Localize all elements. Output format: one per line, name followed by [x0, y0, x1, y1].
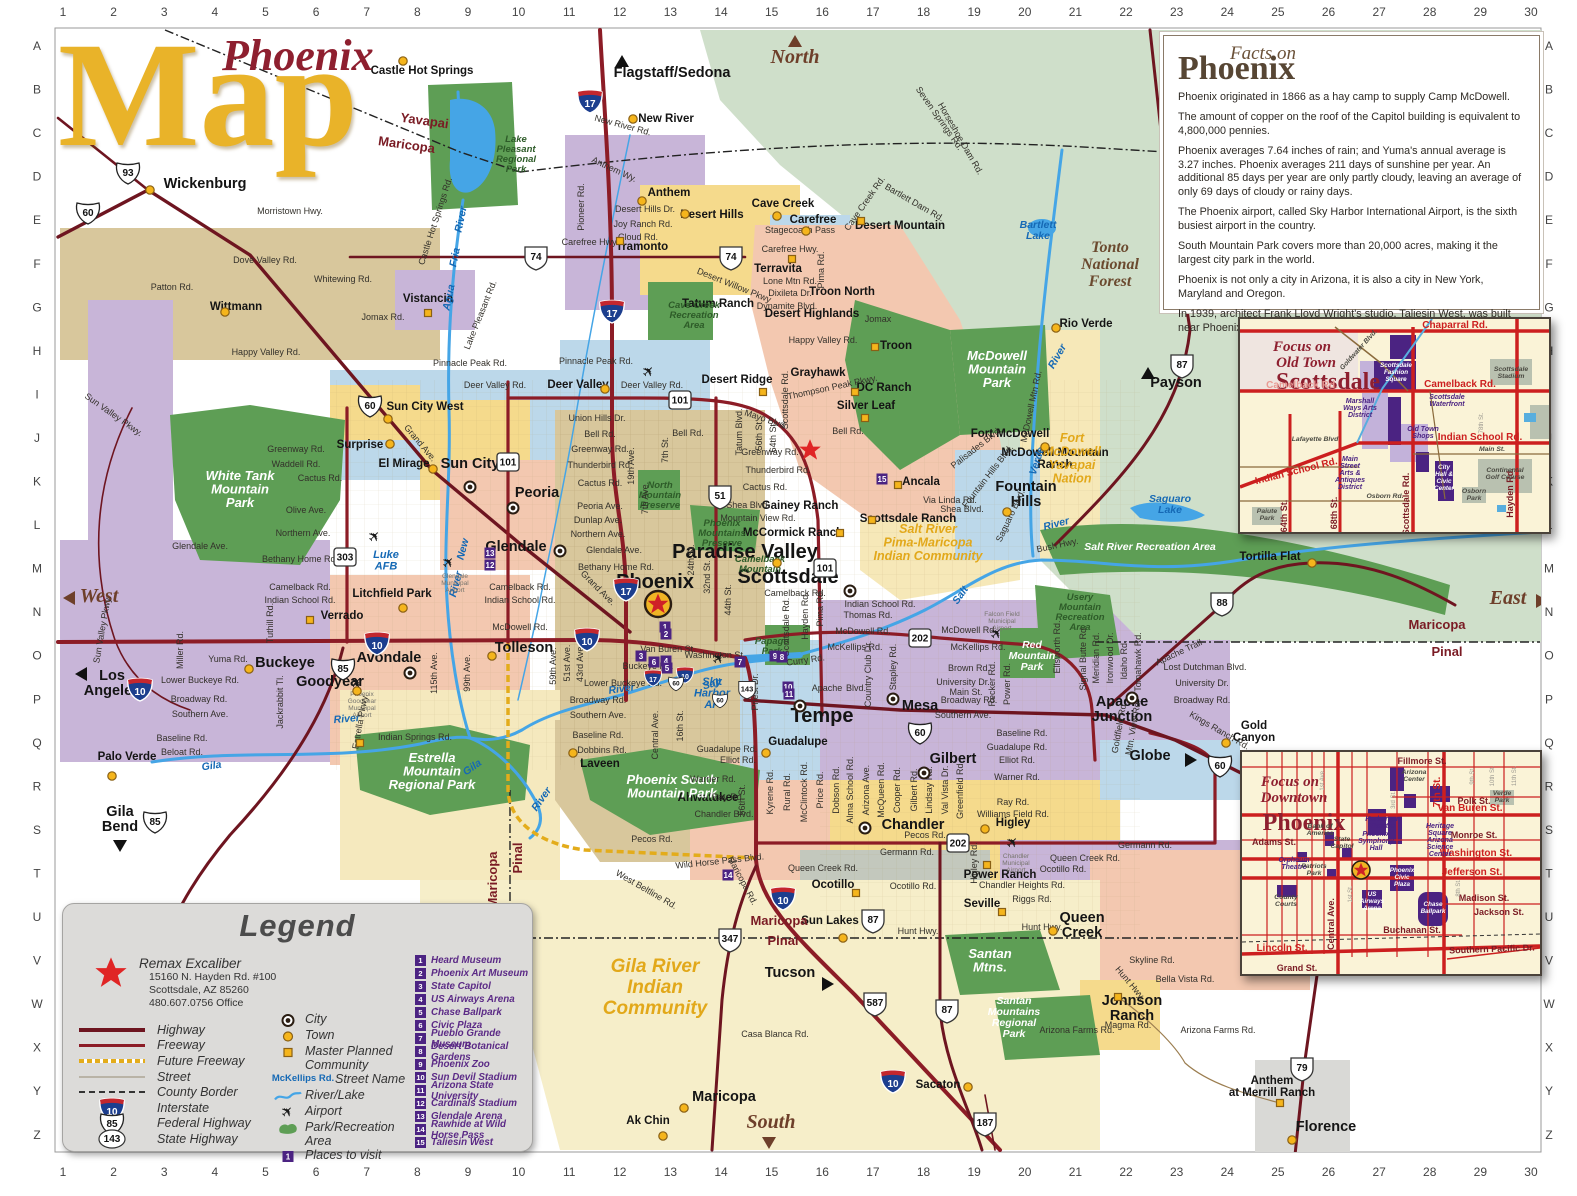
- grid-row-label: X: [33, 1041, 41, 1055]
- place-label: El Mirage: [378, 458, 429, 470]
- road-label: Thomas Rd.: [843, 610, 892, 620]
- grid-row-label: B: [33, 83, 41, 97]
- road-label: Bethany Home Rd.: [578, 562, 654, 572]
- road-label: Southern Ave.: [935, 710, 991, 720]
- inset-label: Jackson St.: [1474, 907, 1524, 917]
- road-label: Guadalupe Rd.: [697, 744, 758, 754]
- inset-block: [1524, 413, 1536, 422]
- park-label: SantanMtns.: [968, 946, 1011, 975]
- grid-row-label: M: [1544, 562, 1554, 576]
- place-label: Palo Verde: [98, 751, 157, 763]
- place-label: Florence: [1296, 1119, 1356, 1135]
- place-label: Desert Mountain: [855, 220, 945, 232]
- legend-item-highway: Highway: [79, 1022, 269, 1038]
- grid-row-label: Y: [1545, 1084, 1553, 1098]
- place-label: QueenCreek: [1059, 910, 1104, 941]
- master-planned-community-dot: [789, 256, 796, 263]
- place-label: Flagstaff/Sedona: [614, 65, 732, 81]
- city-dot: [845, 586, 856, 597]
- road-label: Glendale Ave.: [586, 545, 642, 555]
- road-label: Indian School Rd.: [844, 599, 915, 609]
- svg-text:143: 143: [104, 1134, 121, 1145]
- road-label: Tuthill Rd.: [265, 603, 275, 643]
- road-label: Skyline Rd.: [1129, 955, 1175, 965]
- town-dot: [773, 212, 781, 220]
- realtor-address-line: Scottsdale, AZ 85260: [149, 984, 293, 997]
- inset-label: 3rd St.: [1391, 791, 1397, 809]
- grid-row-label: B: [1545, 83, 1553, 97]
- road-label: Bella Vista Rd.: [1156, 974, 1215, 984]
- grid-row-label: P: [1545, 692, 1553, 706]
- road-label: Bell Rd.: [672, 428, 704, 438]
- inset-label: Madison St.: [1459, 893, 1510, 903]
- road-label: Dobbins Rd.: [577, 745, 627, 755]
- road-label: Dobson Rd.: [831, 766, 841, 814]
- place-label: New River: [638, 113, 694, 125]
- road-label: 99th Ave.: [462, 654, 472, 691]
- master-planned-community-dot: [357, 740, 364, 747]
- road-label: Arizona Farms Rd.: [1039, 1025, 1114, 1035]
- county-label: Pinal: [767, 933, 798, 948]
- place-label: Laveen: [580, 758, 620, 770]
- road-label: Jomax Rd.: [361, 312, 404, 322]
- svg-text:202: 202: [912, 634, 929, 645]
- road-label: University Dr.: [936, 677, 990, 687]
- road-label: Ironwood Dr.: [1105, 632, 1115, 683]
- town-dot: [802, 227, 810, 235]
- svg-text:17: 17: [606, 309, 618, 320]
- grid-col-label: 23: [1170, 1165, 1184, 1179]
- road-label: Guadalupe Rd.: [987, 742, 1048, 752]
- realtor-name: Remax Excaliber: [139, 956, 293, 971]
- road-label: Jackrabbit Tl.: [275, 675, 285, 728]
- road-label: 32nd St.: [702, 560, 712, 594]
- town-dot: [1049, 927, 1057, 935]
- city-dot: [405, 668, 416, 679]
- road-label: Shea Blvd.: [726, 500, 770, 510]
- grid-col-label: 17: [866, 5, 880, 19]
- city-dot: [919, 768, 930, 779]
- grid-col-label: 10: [512, 5, 526, 19]
- svg-text:17: 17: [584, 99, 596, 110]
- grid-col-label: 22: [1119, 1165, 1133, 1179]
- inset-star-marker: [1352, 861, 1370, 879]
- road-label: Deer Valley Rd.: [621, 380, 683, 390]
- grid-col-label: 26: [1322, 5, 1336, 19]
- road-label: Stapley Rd.: [888, 644, 898, 691]
- master-planned-community-dot: [862, 415, 869, 422]
- grid-col-label: 24: [1221, 5, 1235, 19]
- place-label: LukeAFB: [373, 549, 399, 573]
- grid-row-label: L: [34, 518, 41, 532]
- grid-col-label: 15: [765, 5, 779, 19]
- inset-scottsdale: Focus onOld TownScottsdaleCamelback Rd.C…: [1238, 317, 1551, 534]
- grid-row-label: F: [1545, 257, 1552, 271]
- road-label: Patton Rd.: [151, 282, 194, 292]
- svg-text:14: 14: [724, 871, 733, 880]
- realtor-address-line: 15160 N. Hayden Rd. #100: [149, 971, 293, 984]
- grid-col-label: 23: [1170, 5, 1184, 19]
- inset-label: ArizonaCenter: [1401, 769, 1427, 783]
- highway-shield-87: 87: [862, 910, 884, 933]
- county-label: Maricopa: [750, 913, 808, 928]
- grid-col-label: 12: [613, 5, 627, 19]
- place-label: Avondale: [357, 650, 422, 666]
- road-label: Main St.: [949, 687, 982, 697]
- road-label: Greenway Rd.: [571, 444, 629, 454]
- road-label: 7th Ave.: [640, 482, 650, 514]
- highway-shield-101: 101: [497, 453, 519, 471]
- fact-paragraph: The amount of copper on the roof of the …: [1178, 111, 1525, 138]
- inset-label: Jefferson St.: [1442, 867, 1503, 878]
- place-label: Grayhawk: [791, 367, 847, 379]
- legend-item-street: Street: [79, 1069, 269, 1085]
- place-label: Desert Hills: [680, 209, 743, 221]
- legend-place-3: 3State Capitol: [415, 980, 529, 993]
- town-dot: [773, 559, 781, 567]
- county-label: Maricopa: [1408, 617, 1466, 632]
- road-label: Northern Ave.: [276, 528, 331, 538]
- master-planned-community-dot: [895, 482, 902, 489]
- road-label: Higley Rd.: [969, 842, 979, 884]
- inset-label: ScottsdaleStadium: [1494, 366, 1529, 380]
- inset-label: ContinentalGolf Course: [1486, 467, 1525, 481]
- legend-item-city: City: [271, 1012, 411, 1028]
- town-dot: [1041, 443, 1049, 451]
- fact-paragraph: Phoenix is not only a city in Arizona, i…: [1178, 274, 1525, 301]
- place-to-visit-badge: 2: [661, 629, 672, 640]
- facts-body: Phoenix originated in 1866 as a hay camp…: [1178, 91, 1525, 335]
- grid-col-label: 12: [613, 1165, 627, 1179]
- grid-col-label: 26: [1322, 1165, 1336, 1179]
- road-label: Dove Valley Rd.: [233, 255, 297, 265]
- place-label: Tolleson: [495, 640, 554, 656]
- place-label: Sun Lakes: [801, 915, 859, 927]
- grid-col-label: 13: [664, 5, 678, 19]
- grid-col-label: 24: [1221, 1165, 1235, 1179]
- grid-col-label: 29: [1474, 5, 1488, 19]
- road-label: Power Rd.: [1002, 663, 1012, 705]
- road-label: Greenfield Rd.: [955, 761, 965, 819]
- place-label: Tortilla Flat: [1239, 551, 1300, 563]
- inset-block: [1416, 452, 1429, 472]
- town-dot: [1288, 1136, 1296, 1144]
- place-label: Sun City West: [386, 401, 463, 413]
- road-label: Idaho Rd.: [1119, 640, 1129, 679]
- inset-block: [1327, 869, 1336, 877]
- road-label: Ocotillo Rd.: [1040, 864, 1087, 874]
- inset-block: [1404, 794, 1416, 808]
- grid-col-label: 9: [465, 1165, 472, 1179]
- road-label: Northern Ave.: [571, 529, 626, 539]
- road-label: Bethany Home Rd.: [262, 554, 338, 564]
- grid-col-label: 20: [1018, 5, 1032, 19]
- road-label: Thunderbird Rd.: [567, 460, 632, 470]
- inset-label: 68th St.: [1329, 497, 1339, 530]
- master-planned-community-dot: [837, 530, 844, 537]
- grid-col-label: 5: [262, 5, 269, 19]
- town-dot: [429, 465, 437, 473]
- grid-col-label: 17: [866, 1165, 880, 1179]
- grid-col-label: 6: [313, 1165, 320, 1179]
- city-dot: [860, 823, 871, 834]
- inset-label: PhoenixSymphonyHall: [1358, 831, 1395, 852]
- grid-row-label: Q: [32, 736, 41, 750]
- legend-symbol-items: CityTownMaster Planned CommunityMcKellip…: [271, 1012, 411, 1164]
- grid-row-label: U: [33, 910, 42, 924]
- legend-numbered-items: 1Heard Museum2Phoenix Art Museum3State C…: [415, 954, 529, 1149]
- road-label: Signal Butte Rd.: [1078, 625, 1088, 690]
- svg-text:101: 101: [817, 564, 834, 575]
- direction-label: North: [770, 46, 820, 68]
- road-label: Waddell Rd.: [272, 459, 321, 469]
- place-to-visit-badge: 14: [723, 870, 734, 881]
- grid-col-label: 22: [1119, 5, 1133, 19]
- road-label: Broadway Rd.: [570, 695, 627, 705]
- road-label: Pima Rd.: [816, 251, 826, 288]
- county-label: Pinal: [1431, 644, 1462, 659]
- inset-downtown: Focus onDowntownPhoenixVan Buren St.Wash…: [1240, 750, 1542, 976]
- highway-shield-87: 87: [1171, 355, 1193, 378]
- svg-text:3: 3: [639, 652, 644, 661]
- road-label: Queen Creek Rd.: [1050, 853, 1120, 863]
- inset-label: 1st Ave.: [1320, 769, 1326, 791]
- road-label: Bell Rd.: [584, 429, 616, 439]
- grid-col-label: 21: [1069, 5, 1083, 19]
- svg-text:7: 7: [738, 658, 743, 667]
- place-label: Sun City: [441, 456, 500, 472]
- svg-text:85: 85: [337, 664, 349, 675]
- road-label: Elliot Rd.: [999, 755, 1035, 765]
- road-label: Glendale Ave.: [172, 541, 228, 551]
- place-label: Buckeye: [255, 655, 315, 671]
- direction-label: East: [1489, 587, 1528, 609]
- road-label: 51st Ave.: [562, 645, 572, 682]
- grid-row-label: W: [31, 997, 43, 1011]
- legend-item-places-to-visit: 1Places to visit: [271, 1148, 411, 1164]
- grid-col-label: 30: [1524, 5, 1538, 19]
- grid-col-label: 27: [1372, 5, 1386, 19]
- svg-text:85: 85: [149, 817, 161, 828]
- road-label: Ray Rd.: [997, 797, 1030, 807]
- facts-box: Facts on Phoenix Phoenix originated in 1…: [1163, 35, 1540, 310]
- road-label: Queen Creek Rd.: [788, 863, 858, 873]
- grid-col-label: 11: [563, 1165, 576, 1179]
- grid-col-label: 4: [212, 1165, 219, 1179]
- place-label: Wittmann: [210, 301, 262, 313]
- highway-shield-143: 143: [739, 682, 756, 699]
- road-label: Warner Rd.: [690, 774, 736, 784]
- place-to-visit-badge: 12: [485, 560, 496, 571]
- inset-label: Focus on: [1272, 339, 1331, 355]
- legend-place-11: 11Arizona State University: [415, 1084, 529, 1097]
- legend-realtor: Remax Excaliber 15160 N. Hayden Rd. #100…: [93, 956, 293, 1009]
- road-label: Happy Valley Rd.: [789, 335, 858, 345]
- inset-label: Old TownShops: [1407, 426, 1439, 440]
- road-label: 64th St.: [768, 421, 778, 452]
- grid-col-label: 25: [1271, 5, 1285, 19]
- inset-label: 78th St.: [1479, 412, 1485, 433]
- grid-col-label: 20: [1018, 1165, 1032, 1179]
- place-to-visit-badge: 11: [784, 689, 795, 700]
- svg-text:5: 5: [665, 664, 670, 673]
- legend-item-freeway: Freeway: [79, 1038, 269, 1054]
- legend-box: Legend Remax Excaliber 15160 N. Hayden R…: [62, 903, 533, 1152]
- town-dot: [488, 652, 496, 660]
- town-dot: [601, 385, 609, 393]
- road-label: Riggs Rd.: [1012, 894, 1052, 904]
- svg-text:60: 60: [672, 681, 680, 688]
- place-label: Troon: [880, 340, 912, 352]
- highway-shield-101: 101: [814, 559, 836, 577]
- town-dot: [1222, 739, 1230, 747]
- town-dot: [762, 749, 770, 757]
- road-label: Tomahawk Rd.: [1133, 632, 1143, 692]
- grid-row-label: O: [32, 649, 41, 663]
- place-label: Deer Valley: [547, 379, 609, 391]
- town-dot: [399, 57, 407, 65]
- highway-shield-202: 202: [909, 629, 931, 647]
- grid-row-label: F: [33, 257, 40, 271]
- highway-shield-101: 101: [669, 391, 691, 409]
- town-dot: [839, 934, 847, 942]
- road-label: Bell Rd.: [832, 426, 864, 436]
- town-dot: [569, 749, 577, 757]
- road-label: 44th St.: [723, 584, 733, 615]
- place-label: GilaBend: [102, 804, 138, 835]
- place-label: Surprise: [337, 439, 384, 451]
- grid-col-label: 15: [765, 1165, 779, 1179]
- road-label: Casa Blanca Rd.: [741, 1029, 809, 1039]
- grid-col-label: 5: [262, 1165, 269, 1179]
- master-planned-community-dot: [869, 517, 876, 524]
- road-label: Hayden Rd.: [800, 592, 810, 640]
- road-label: Lower Buckeye Rd.: [161, 675, 239, 685]
- road-label: Camelback Rd.: [489, 582, 551, 592]
- road-label: Beloat Rd.: [161, 747, 203, 757]
- road-label: Happy Valley Rd.: [232, 347, 301, 357]
- place-label: Silver Leaf: [837, 400, 895, 412]
- highway-shield-51: 51: [709, 486, 731, 509]
- city-dot: [555, 546, 566, 557]
- road-label: McQueen Rd.: [876, 762, 886, 818]
- grid-row-label: H: [33, 344, 42, 358]
- legend-title: Legend: [63, 908, 532, 944]
- road-label: Cactus Rd.: [743, 482, 788, 492]
- highway-shield-202: 202: [947, 834, 969, 852]
- grid-row-label: A: [1545, 39, 1553, 53]
- legend-place-12: 12Cardinals Stadium: [415, 1097, 529, 1110]
- grid-row-label: U: [1545, 910, 1554, 924]
- highway-shield-88: 88: [1211, 593, 1233, 616]
- road-label: Chandler Heights Rd.: [979, 880, 1065, 890]
- svg-text:60: 60: [364, 401, 376, 412]
- inset-label: HeritageSquareArizonaScienceCenter: [1426, 823, 1454, 858]
- grid-col-label: 10: [512, 1165, 526, 1179]
- place-label: Desert Ridge: [702, 374, 773, 386]
- inset-label: Osborn Rd.: [1366, 493, 1403, 500]
- road-label: Lone Mtn Rd.: [763, 276, 817, 286]
- road-label: Mountain View Rd.: [720, 513, 795, 523]
- place-to-visit-badge: 5: [662, 663, 673, 674]
- place-to-visit-badge: 7: [735, 657, 746, 668]
- legend-item-park-recreation-area: Park/Recreation Area: [271, 1120, 411, 1148]
- park-label: Salt River Recreation Area: [1084, 541, 1216, 553]
- highway-shield-347: 347: [719, 929, 741, 952]
- grid-row-label: C: [1545, 126, 1554, 140]
- inset-label: Downtown: [1260, 790, 1328, 806]
- grid-col-label: 11: [563, 5, 576, 19]
- road-label: Elliot Rd.: [720, 755, 756, 765]
- grid-col-label: 7: [363, 5, 370, 19]
- svg-text:13: 13: [486, 549, 495, 558]
- town-dot: [245, 665, 253, 673]
- road-label: 56th St.: [737, 784, 747, 815]
- road-label: Rural Rd.: [782, 773, 792, 811]
- direction-label: West: [80, 585, 120, 607]
- svg-text:60: 60: [716, 698, 724, 705]
- city-dot: [465, 482, 476, 493]
- grid-col-label: 9: [465, 5, 472, 19]
- road-label: Baseline Rd.: [572, 730, 623, 740]
- svg-text:6: 6: [652, 658, 657, 667]
- grid-col-label: 18: [917, 5, 931, 19]
- road-label: Miller Rd.: [175, 631, 185, 669]
- inset-label: ChaseBallpark: [1421, 901, 1446, 915]
- inset-label: 11th St.: [1512, 766, 1518, 787]
- grid-col-label: 19: [967, 5, 981, 19]
- svg-text:11: 11: [785, 690, 794, 699]
- place-label: Gilbert: [930, 751, 977, 767]
- master-planned-community-dot: [425, 310, 432, 317]
- road-label: Camelback Rd.: [269, 582, 331, 592]
- legend-place-1: 1Heard Museum: [415, 954, 529, 967]
- road-label: Yuma Rd.: [208, 654, 248, 664]
- facts-title: Phoenix: [1178, 55, 1525, 84]
- inset-label: 64th St.: [1279, 500, 1289, 532]
- place-label: Ak Chin: [626, 1115, 669, 1127]
- inset-label: StateCapitol: [1330, 836, 1353, 850]
- road-label: 56th St.: [754, 419, 764, 450]
- city-dot: [1127, 693, 1138, 704]
- grid-col-label: 1: [60, 1165, 67, 1179]
- highway-shield-187: 187: [974, 1113, 996, 1136]
- grid-row-label: D: [1545, 170, 1554, 184]
- svg-text:101: 101: [500, 458, 517, 469]
- road-label: Val Vista Dr.: [940, 766, 950, 815]
- road-label: Pinnacle Peak Rd.: [433, 358, 507, 368]
- direction-label: South: [747, 1111, 796, 1133]
- grid-col-label: 13: [664, 1165, 678, 1179]
- grid-row-label: V: [1545, 954, 1553, 968]
- road-label: Pima Rd.: [815, 589, 825, 626]
- master-planned-community-dot: [1115, 994, 1122, 1001]
- highway-shield-87: 87: [936, 1000, 958, 1023]
- phoenix-star-marker: [645, 591, 671, 617]
- svg-text:79: 79: [1296, 1063, 1308, 1074]
- inset-label: 7th St.: [1432, 777, 1443, 808]
- road-label: Pioneer Rd.: [576, 183, 586, 231]
- grid-col-label: 1: [60, 5, 67, 19]
- road-label: Ocotillo Rd.: [890, 881, 937, 891]
- realtor-star-icon: [93, 956, 129, 990]
- legend-place-4: 4US Airways Arena: [415, 993, 529, 1006]
- legend-place-2: 2Phoenix Art Museum: [415, 967, 529, 980]
- road-label: Cooper Rd.: [892, 767, 902, 813]
- grid-col-label: 28: [1423, 1165, 1437, 1179]
- road-label: Morristown Hwy.: [257, 206, 323, 216]
- svg-text:101: 101: [672, 396, 689, 407]
